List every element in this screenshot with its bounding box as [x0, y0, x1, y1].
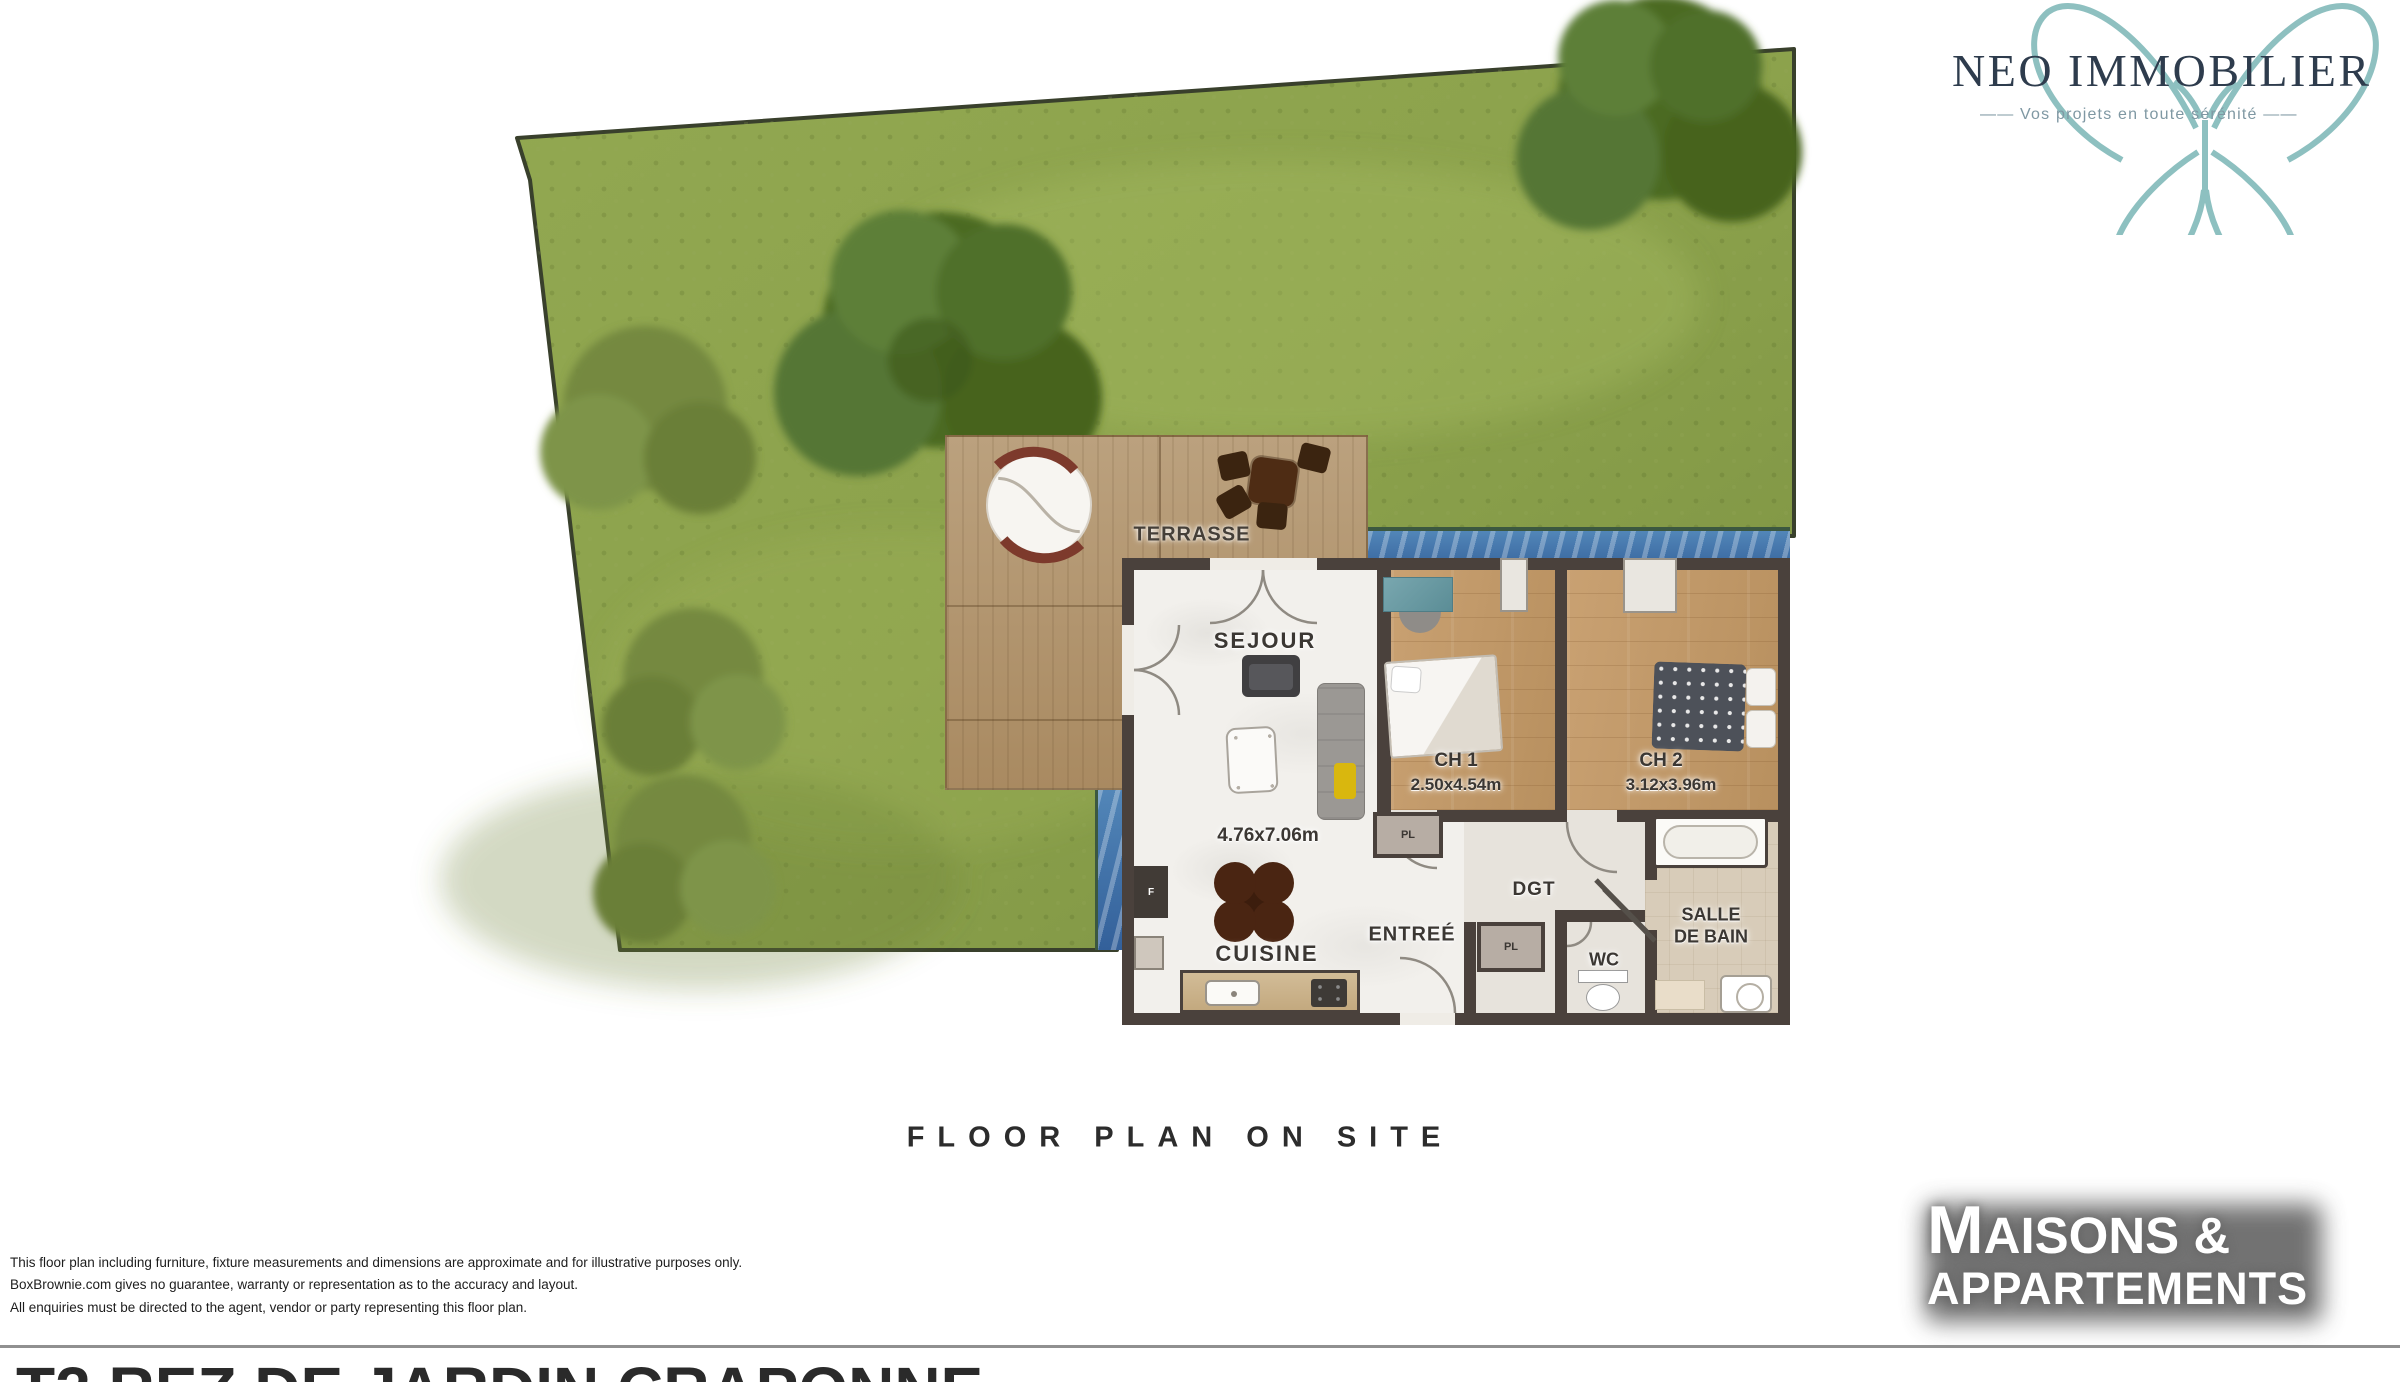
- kitchen-sink: [1205, 980, 1260, 1006]
- outdoor-chair: [1256, 502, 1288, 531]
- outdoor-chair: [1215, 483, 1254, 521]
- door-opening: [1122, 625, 1134, 715]
- neo-immobilier-name: NEO IMMOBILIER: [1952, 44, 2372, 97]
- door-opening: [1210, 558, 1317, 570]
- sun-lounger: [969, 441, 1109, 569]
- closet-pl1: PL: [1373, 812, 1443, 858]
- pool: [1095, 790, 1122, 950]
- closet-pl1-label: PL: [1401, 829, 1415, 841]
- door-opening: [1400, 1013, 1455, 1025]
- divider-line: [0, 1345, 2400, 1348]
- kitchen-table: [1214, 862, 1256, 904]
- terrace-label: TERRASSE: [1134, 524, 1251, 547]
- bedroom2-pillows: [1746, 668, 1776, 750]
- chaise-sofa: [1317, 683, 1365, 820]
- living-room-label: SEJOUR: [1214, 628, 1316, 654]
- bedroom1-bed: [1384, 654, 1503, 759]
- closet-pl2-label: PL: [1504, 941, 1518, 953]
- coffee-table: [1225, 726, 1278, 795]
- kitchen-label: CUISINE: [1215, 941, 1318, 967]
- bath-mat: [1655, 980, 1705, 1010]
- bedroom2-dimensions: 3.12x3.96m: [1626, 775, 1717, 795]
- bedroom2-label: CH 2: [1639, 750, 1682, 772]
- bedroom1-desk: [1383, 577, 1453, 612]
- outdoor-table: [1247, 456, 1299, 508]
- disclaimer-line1: This floor plan including furniture, fix…: [10, 1252, 742, 1274]
- pillow: [1390, 666, 1422, 694]
- cushion: [1334, 763, 1356, 799]
- tree: [1516, 0, 1802, 230]
- sofa: [1242, 655, 1300, 697]
- disclaimer-line2: BoxBrownie.com gives no guarantee, warra…: [10, 1274, 742, 1296]
- hallway-label: DGT: [1512, 879, 1555, 901]
- bedroom1-dimensions: 2.50x4.54m: [1411, 775, 1502, 795]
- bathroom-label-line1: SALLE: [1681, 905, 1740, 926]
- maisons-appartements-text: MAISONS & APPARTEMENTS: [1927, 1196, 2308, 1311]
- outdoor-chair: [1217, 450, 1252, 482]
- toilet: [1586, 984, 1620, 1011]
- closet-pl2: PL: [1477, 922, 1545, 972]
- toilet: [1578, 970, 1628, 983]
- floor-plan-page: TERRASSE: [0, 0, 2400, 1382]
- wc-label: WC: [1589, 950, 1619, 971]
- outdoor-chair: [1296, 442, 1331, 474]
- bedroom1-label: CH 1: [1434, 750, 1477, 772]
- fridge-label: F: [1148, 887, 1154, 898]
- maisons-line1: MAISONS &: [1927, 1196, 2308, 1264]
- living-room-dimensions: 4.76x7.06m: [1217, 825, 1318, 847]
- house-plan: PL PL F SEJOUR 4.76x: [1122, 558, 1790, 1025]
- property-headline: T2 REZ DE JARDIN CRAPONNE: [16, 1353, 983, 1382]
- bedroom2-bed: [1652, 661, 1747, 751]
- bathroom-sink: [1720, 975, 1772, 1013]
- disclaimer-line3: All enquiries must be directed to the ag…: [10, 1297, 742, 1319]
- entry-label: ENTREÉ: [1368, 924, 1455, 947]
- maisons-appartements-logo: MAISONS & APPARTEMENTS: [1905, 1196, 2350, 1338]
- appliance: [1134, 936, 1164, 970]
- neo-immobilier-tagline: —— Vos projets en toute sérénité ——: [1980, 106, 2298, 124]
- disclaimer: This floor plan including furniture, fix…: [10, 1252, 742, 1319]
- fridge: F: [1134, 866, 1168, 918]
- kitchen-counter: [1180, 970, 1360, 1013]
- stove: [1311, 979, 1347, 1007]
- bathtub: [1653, 816, 1768, 868]
- neo-immobilier-logo: NEO IMMOBILIER —— Vos projets en toute s…: [1900, 0, 2400, 235]
- plan-caption: FLOOR PLAN ON SITE: [907, 1122, 1454, 1155]
- maisons-line2: APPARTEMENTS: [1927, 1266, 2308, 1311]
- bathroom-label-line2: DE BAIN: [1674, 927, 1748, 948]
